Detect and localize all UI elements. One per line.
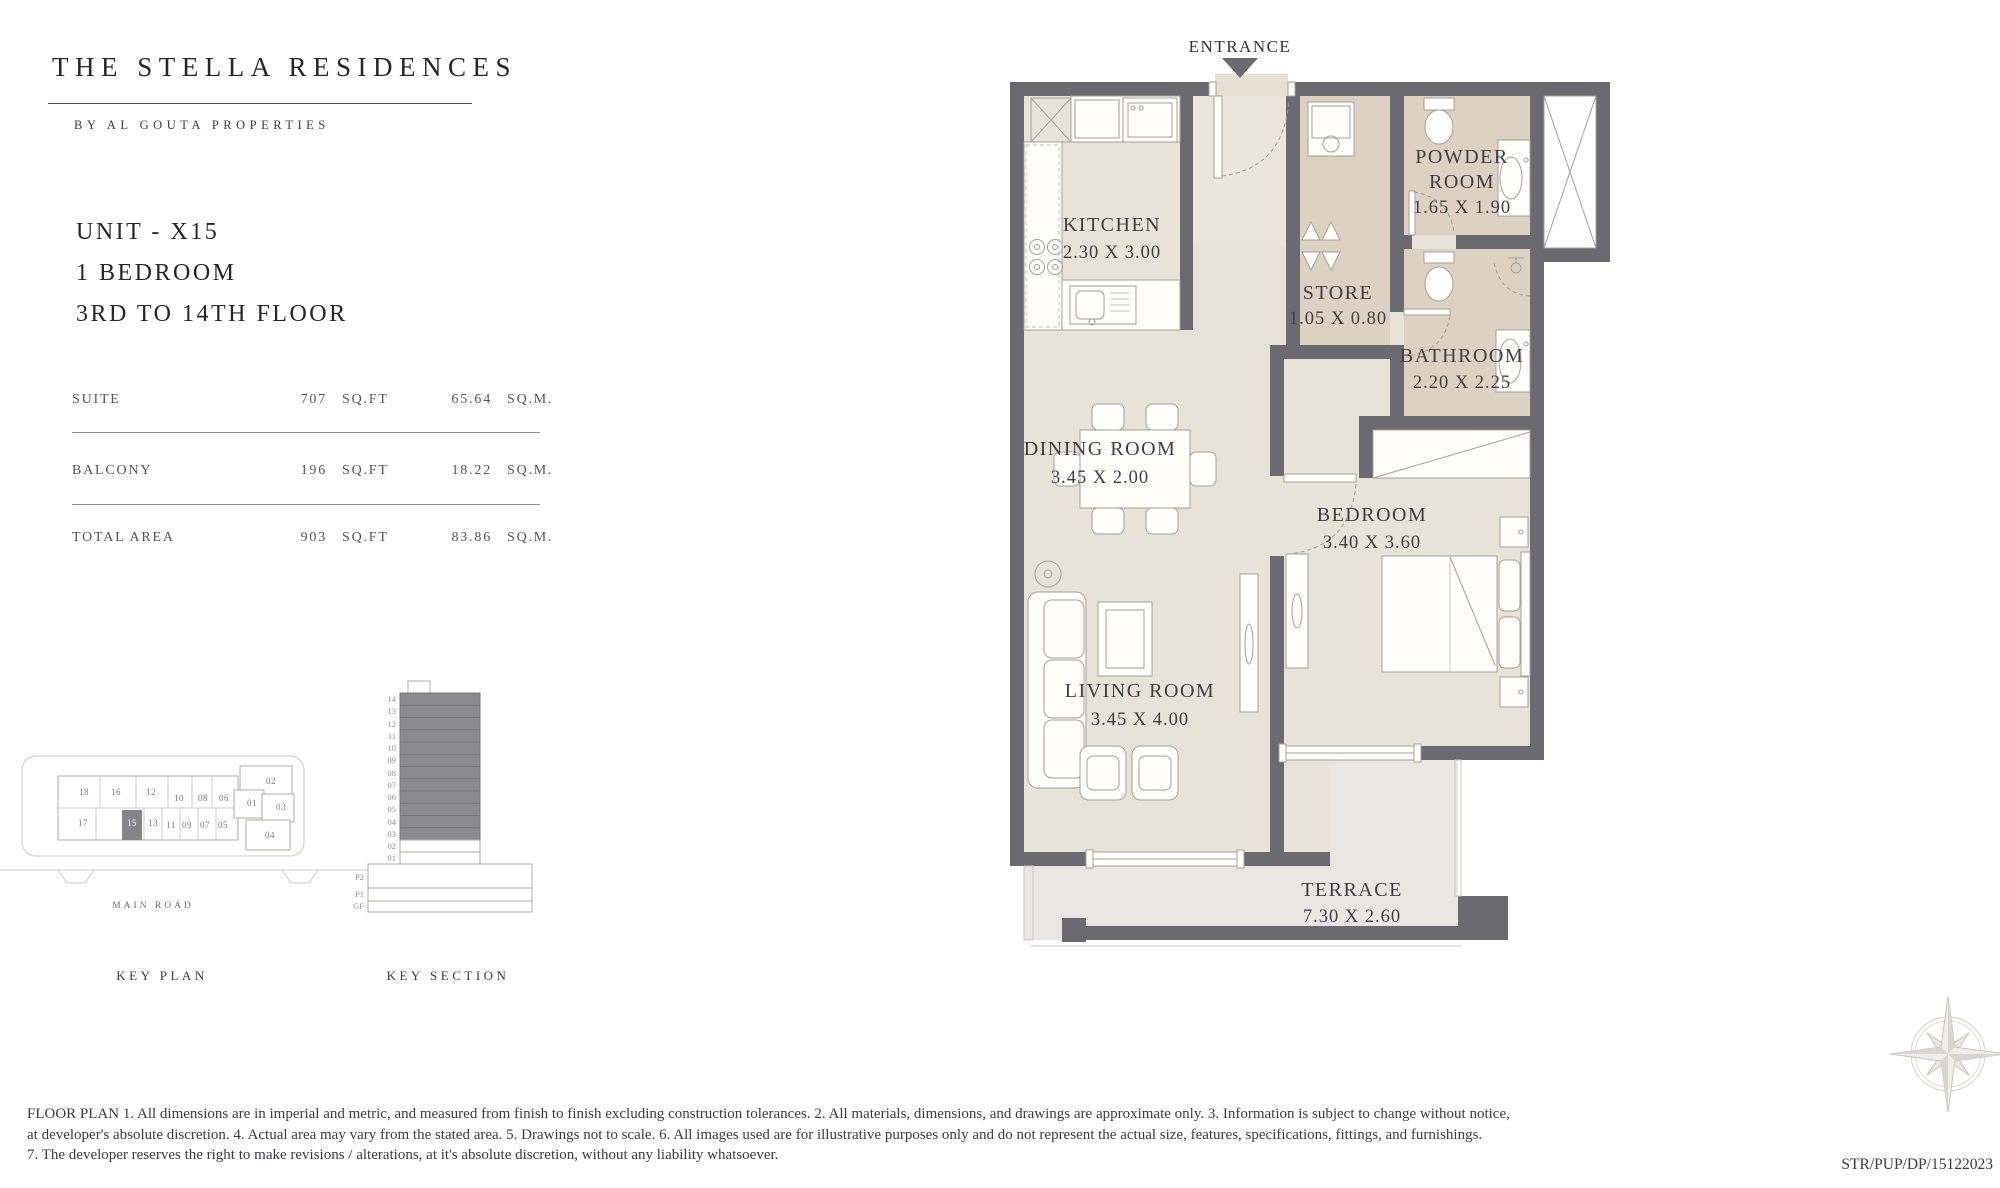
podium-gf bbox=[368, 901, 532, 912]
room-label-kitchen: KITCHEN bbox=[1063, 214, 1161, 236]
coffee-table bbox=[1098, 602, 1152, 676]
floor-number-label: 06 bbox=[388, 792, 397, 802]
podium-p1 bbox=[368, 888, 532, 901]
room-label-dining: DINING ROOM bbox=[1024, 438, 1177, 460]
disclaimer: FLOOR PLAN 1. All dimensions are in impe… bbox=[27, 1104, 1510, 1166]
unit-number-label: 07 bbox=[200, 820, 210, 830]
floor-number-label: 03 bbox=[388, 829, 397, 839]
nightstand bbox=[1500, 517, 1528, 547]
floor-number-label: 12 bbox=[388, 719, 397, 729]
wardrobe bbox=[1373, 430, 1530, 478]
podium-label: GF bbox=[353, 901, 364, 911]
entrance-door-leaf bbox=[1214, 96, 1222, 178]
room-label-living: LIVING ROOM bbox=[1065, 680, 1215, 702]
room-label-powder-1: POWDER bbox=[1415, 146, 1508, 168]
unit-number-label: 16 bbox=[111, 787, 121, 797]
pillow bbox=[1499, 560, 1520, 611]
room-label-powder-2: ROOM bbox=[1429, 171, 1495, 193]
pillow bbox=[1499, 617, 1520, 668]
bedroom-window bbox=[1279, 744, 1421, 762]
toilet-icon bbox=[1424, 98, 1454, 144]
headboard bbox=[1521, 552, 1530, 676]
chair bbox=[1146, 404, 1178, 430]
compass-icon bbox=[1890, 996, 2000, 1112]
floor-number-label: 11 bbox=[388, 731, 396, 741]
floor-number-label: 04 bbox=[388, 817, 397, 827]
floor-number-label: 02 bbox=[388, 841, 397, 851]
bedroom-door-leaf bbox=[1284, 474, 1356, 482]
chair bbox=[1092, 404, 1124, 430]
floor-number-label: 10 bbox=[388, 743, 397, 753]
unit-number-label: 18 bbox=[79, 787, 89, 797]
nightstand bbox=[1500, 677, 1528, 707]
entrance-label: ENTRANCE bbox=[1189, 37, 1292, 56]
floor-number-label: 01 bbox=[388, 853, 397, 863]
room-dims-living: 3.45 X 4.00 bbox=[1091, 710, 1189, 730]
room-dims-terrace: 7.30 X 2.60 bbox=[1303, 907, 1401, 927]
armchair bbox=[1132, 746, 1178, 800]
floor-number-label: 13 bbox=[388, 706, 397, 716]
chair bbox=[1190, 452, 1216, 486]
unit-number-label: 02 bbox=[266, 776, 276, 786]
room-dims-powder: 1.65 X 1.90 bbox=[1413, 198, 1511, 218]
unit-number-label: 11 bbox=[166, 820, 176, 830]
floor-number-label: 09 bbox=[388, 755, 397, 765]
floor-plan: ENTRANCE bbox=[1010, 37, 1610, 946]
floor-number-label: 14 bbox=[388, 694, 397, 704]
toilet-icon bbox=[1424, 252, 1454, 301]
architectural-drawing: ENTRANCE bbox=[0, 0, 2000, 1188]
key-section: 14 13 12 11 10 09 08 07 06 05 04 03 02 0… bbox=[353, 681, 532, 983]
washing-machine-icon bbox=[1308, 102, 1354, 156]
unit-number-label: 04 bbox=[265, 830, 275, 840]
unit-number-label: 06 bbox=[219, 793, 229, 803]
floor-number-label: 05 bbox=[388, 804, 397, 814]
podium-label: P1 bbox=[355, 889, 364, 899]
unit-number-label: 03 bbox=[276, 802, 286, 812]
key-plan-caption: KEY PLAN bbox=[116, 968, 207, 983]
armchair bbox=[1080, 746, 1126, 800]
disclaimer-line: at developer's absolute discretion. 4. A… bbox=[27, 1125, 1510, 1146]
chair bbox=[1092, 508, 1124, 534]
unit-number-label: 09 bbox=[182, 820, 192, 830]
tv-console bbox=[1240, 574, 1258, 712]
unit-number-label: 17 bbox=[78, 818, 88, 828]
entrance-threshold bbox=[1215, 74, 1288, 96]
room-dims-bathroom: 2.20 X 2.25 bbox=[1413, 373, 1511, 393]
room-label-terrace: TERRACE bbox=[1301, 879, 1403, 901]
disclaimer-line: 7. The developer reserves the right to m… bbox=[27, 1145, 1510, 1166]
room-dims-bedroom: 3.40 X 3.60 bbox=[1323, 533, 1421, 553]
room-dims-store: 1.05 X 0.80 bbox=[1289, 309, 1387, 329]
floor-number-label: 08 bbox=[388, 768, 397, 778]
entrance-vestibule-floor bbox=[1193, 96, 1286, 246]
lift-shaft bbox=[1544, 96, 1596, 248]
road-label: MAIN ROAD bbox=[112, 901, 194, 911]
unit-number-label: 01 bbox=[247, 798, 257, 808]
room-label-bedroom: BEDROOM bbox=[1317, 504, 1428, 526]
chair bbox=[1146, 508, 1178, 534]
floor-number-label: 07 bbox=[388, 780, 397, 790]
unit-number-label: 13 bbox=[148, 818, 158, 828]
room-dims-dining: 3.45 X 2.00 bbox=[1051, 468, 1149, 488]
unit-number-label: 08 bbox=[198, 793, 208, 803]
unit-number-label-highlighted: 15 bbox=[127, 818, 137, 828]
podium-p2 bbox=[368, 864, 532, 888]
living-room-window bbox=[1086, 850, 1244, 868]
floor-plan-sheet: THE STELLA RESIDENCES BY AL GOUTA PROPER… bbox=[0, 0, 2000, 1188]
room-label-store: STORE bbox=[1303, 282, 1373, 304]
unit-number-label: 12 bbox=[146, 787, 156, 797]
tv-console bbox=[1286, 554, 1308, 668]
room-dims-kitchen: 2.30 X 3.00 bbox=[1063, 243, 1161, 263]
drawing-reference: STR/PUP/DP/15122023 bbox=[1841, 1156, 1993, 1174]
key-section-caption: KEY SECTION bbox=[387, 968, 510, 983]
room-label-bathroom: BATHROOM bbox=[1400, 345, 1524, 367]
unit-number-label: 05 bbox=[218, 820, 228, 830]
disclaimer-line: FLOOR PLAN 1. All dimensions are in impe… bbox=[27, 1104, 1510, 1125]
bathroom-door-leaf bbox=[1404, 309, 1450, 315]
podium-label: P2 bbox=[355, 872, 364, 882]
unit-number-label: 10 bbox=[174, 793, 184, 803]
